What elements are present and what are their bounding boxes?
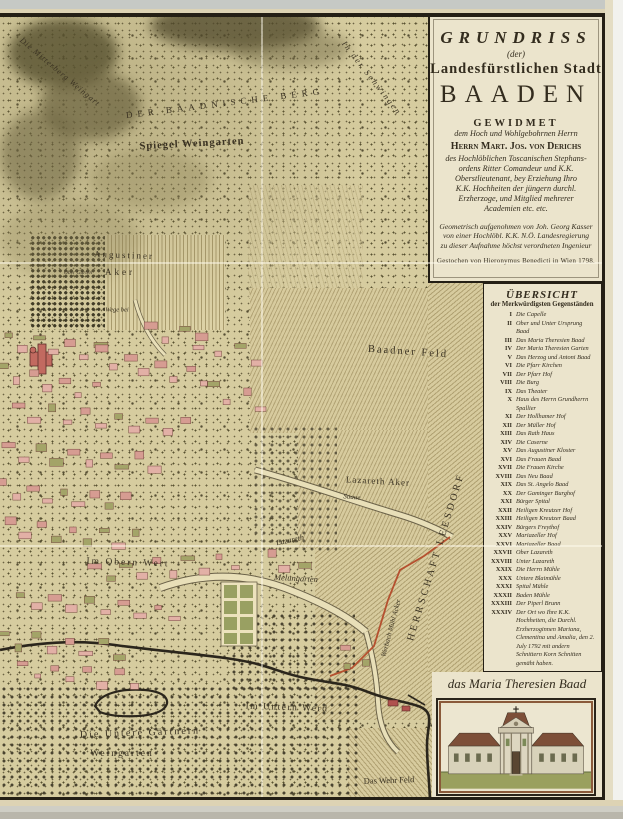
- legend-item-numeral: XX: [487, 490, 516, 499]
- legend-item-label: Die Burg: [516, 379, 597, 388]
- legend-title: ÜBERSICHT: [487, 289, 597, 301]
- legend-item-numeral: VI: [487, 362, 516, 371]
- maria-theresien-baad-illustration: [441, 703, 591, 791]
- map-label-lazareth-aker: Lazareth Aker: [346, 474, 411, 487]
- surveyor-line: Geometrisch aufgenohmen von Joh. Georg K…: [430, 222, 602, 231]
- title-grundriss: GRUNDRISS: [430, 28, 602, 48]
- legend-item-numeral: XXVII: [487, 549, 516, 558]
- margin-bottom: [0, 800, 623, 819]
- legend-item-label: Bürgers Freythof: [516, 524, 597, 533]
- legend-item: XIX Das St. Angelo Baad: [487, 481, 597, 490]
- legend-item: XXX Untere Blaimühle: [487, 575, 597, 584]
- legend-item-label: Der Maria Theresien Garten: [516, 345, 597, 354]
- map-label-augustiner: Augustiner: [94, 249, 154, 261]
- legend-item: X Haus des Herrn Grundherrn Spallier: [487, 396, 597, 413]
- legend-item-label: Das St. Angelo Baad: [516, 481, 597, 490]
- legend-item: XV Das Augustiner Kloster: [487, 447, 597, 456]
- dedication-line: Academien etc. etc.: [430, 204, 602, 214]
- legend-item-label: Das Augustiner Kloster: [516, 447, 597, 456]
- map-label-baadner-feld: Baadner Feld: [368, 344, 449, 361]
- map-label-ober-garten: Ober Garten: [64, 270, 92, 276]
- map-label-aker: Aker: [105, 267, 135, 277]
- map-label-werbach-muehl-acker: Werbach Mühl Acker: [379, 598, 402, 657]
- legend-item-label: Das Frauen Baad: [516, 456, 597, 465]
- legend-item-label: Heiligen Kreutzer Baad: [516, 515, 597, 524]
- legend-item: XXIX Die Herrn Mühle: [487, 566, 597, 575]
- legend-item-label: Mariazeller Baad: [516, 541, 597, 550]
- legend-item: XIV Die Caserne: [487, 439, 597, 448]
- dedication-line: des Hochlöblichen Toscanischen Stephans-: [430, 154, 602, 164]
- legend-item-numeral: XXII: [487, 507, 516, 516]
- legend-item: XXVII Ober Lazareth: [487, 549, 597, 558]
- title-baaden: BAADEN: [430, 81, 602, 109]
- legend-item-numeral: XVIII: [487, 473, 516, 482]
- legend-item-numeral: XXXIII: [487, 600, 516, 609]
- dedication-to: dem Hoch und Wohlgebohrnen Herrn: [430, 129, 602, 139]
- margin-right: [605, 0, 623, 819]
- legend-item-numeral: X: [487, 396, 516, 413]
- legend-item-numeral: XIX: [487, 481, 516, 490]
- legend-item: XXXII Baden Mühle: [487, 592, 597, 601]
- title-der: (der): [430, 49, 602, 59]
- legend-item-label: Der Hollhamer Hof: [516, 413, 597, 422]
- legend-item-label: Unter Lazareth: [516, 558, 597, 567]
- legend-item-numeral: XII: [487, 422, 516, 431]
- vignette-frame: [436, 698, 596, 796]
- legend-item-label: Die Frauen Kirche: [516, 464, 597, 473]
- legend-item: II Ober und Unter Ursprung Baad: [487, 320, 597, 337]
- legend-item: XXII Heiligen Kreutzer Hof: [487, 507, 597, 516]
- legend-item-numeral: VII: [487, 371, 516, 380]
- legend-item: V Das Herzog und Antoni Baad: [487, 354, 597, 363]
- engraver-note: Gestochen von Hieronymus Benedicti in Wi…: [430, 258, 602, 265]
- map-label-wege-bei: Wege bei: [105, 307, 128, 314]
- legend-item: VI Die Pfarr Kirchen: [487, 362, 597, 371]
- legend-item-numeral: XVI: [487, 456, 516, 465]
- map-label-im-untern-werd: Im Untern Werd: [245, 702, 328, 715]
- legend-item-label: Die Caserne: [516, 439, 597, 448]
- legend-item: XVIII Das Neu Baad: [487, 473, 597, 482]
- legend-item-numeral: XXIV: [487, 524, 516, 533]
- map-label-herrschaft-leesdorf: HERRSCHAFT LEESDORF: [405, 472, 467, 642]
- legend-item-label: Ober Lazareth: [516, 549, 597, 558]
- legend-item-label: Die Pfarr Kirchen: [516, 362, 597, 371]
- map-label-im-obern-wert: Im Obern Wert: [86, 557, 169, 570]
- legend-item-label: Das Herzog und Antoni Baad: [516, 354, 597, 363]
- legend-item-label: Das Theater: [516, 388, 597, 397]
- legend-item: XVI Das Frauen Baad: [487, 456, 597, 465]
- legend-item-numeral: XIV: [487, 439, 516, 448]
- legend-item-numeral: XXIII: [487, 515, 516, 524]
- legend-item-numeral: XXX: [487, 575, 516, 584]
- dedication-line: Oberstlieutenant, bey Erziehung Ihro: [430, 174, 602, 184]
- legend-item-numeral: IV: [487, 345, 516, 354]
- legend-item: XXXIII Der Piperl Brunn: [487, 600, 597, 609]
- legend-item-label: Heiligen Kreutzer Hof: [516, 507, 597, 516]
- vignette-panel: das Maria Theresien Baad: [432, 672, 602, 800]
- margin-top-gray: [0, 0, 623, 9]
- legend-item: VIII Die Burg: [487, 379, 597, 388]
- legend-item: XXXI Spital Mühle: [487, 583, 597, 592]
- legend-subtitle: der Merkwürdigsten Gegenständen: [487, 301, 597, 308]
- surveyor-line: von einer Hochlöbl. K.K. N.Ö. Landesregi…: [430, 231, 602, 240]
- legend-item-label: Der Piperl Brunn: [516, 600, 597, 609]
- legend-item-numeral: V: [487, 354, 516, 363]
- legend-panel: ÜBERSICHT der Merkwürdigsten Gegenstände…: [483, 283, 602, 672]
- legend-item: XXIII Heiligen Kreutzer Baad: [487, 515, 597, 524]
- legend-item-numeral: XVII: [487, 464, 516, 473]
- legend-item-label: Spital Mühle: [516, 583, 597, 592]
- legend-item: XXV Mariazeller Hof: [487, 532, 597, 541]
- legend-item: III Das Maria Theresien Baad: [487, 337, 597, 346]
- legend-item-numeral: VIII: [487, 379, 516, 388]
- legend-item-label: Ober und Unter Ursprung Baad: [516, 320, 597, 337]
- legend-item-label: Baden Mühle: [516, 592, 597, 601]
- legend-item-numeral: XIII: [487, 430, 516, 439]
- legend-item-numeral: IX: [487, 388, 516, 397]
- map-label-weingarten: Weingarten: [90, 749, 154, 759]
- legend-item-numeral: XV: [487, 447, 516, 456]
- neatline-top: [0, 13, 607, 17]
- legend-item-numeral: XXVI: [487, 541, 516, 550]
- margin-top-beige: [0, 9, 623, 13]
- dedication-line: ordens Ritter Comandeur und K.K.: [430, 164, 602, 174]
- legend-item-numeral: XXVIII: [487, 558, 516, 567]
- legend-item-numeral: XXI: [487, 498, 516, 507]
- surveyor-note: Geometrisch aufgenohmen von Joh. Georg K…: [430, 222, 602, 250]
- vignette-caption: das Maria Theresien Baad: [432, 672, 602, 692]
- legend-item-label: Der Pfarr Hof: [516, 371, 597, 380]
- legend-item-label: Das Maria Theresien Baad: [516, 337, 597, 346]
- legend-item-label: Bürger Spital: [516, 498, 597, 507]
- legend-item-label: Mariazeller Hof: [516, 532, 597, 541]
- dedication-heading: GEWIDMET: [430, 118, 602, 129]
- legend-item: IX Das Theater: [487, 388, 597, 397]
- legend-item-numeral: XXV: [487, 532, 516, 541]
- legend-item: XXIV Bürgers Freythof: [487, 524, 597, 533]
- title-cartouche: GRUNDRISS (der) Landesfürstlichen Stadt …: [428, 16, 602, 283]
- legend-item-label: Die Herrn Mühle: [516, 566, 597, 575]
- legend-item: I Die Capelle: [487, 311, 597, 320]
- legend-item: XX Der Gaminger Burghof: [487, 490, 597, 499]
- legend-item-label: Der Müller Hof: [516, 422, 597, 431]
- legend-item: IV Der Maria Theresien Garten: [487, 345, 597, 354]
- map-label-saaue: Saaue: [343, 492, 361, 501]
- legend-item-numeral: II: [487, 320, 516, 337]
- map-label-in-der-schwingen: In der Schwingen: [340, 39, 404, 117]
- legend-item: XIII Das Rath Haus: [487, 430, 597, 439]
- legend-item-label: Untere Blaimühle: [516, 575, 597, 584]
- legend-item-label: Das Neu Baad: [516, 473, 597, 482]
- legend-item: XXXIV Der Ort wo Ihre K.K. Hochheiten, d…: [487, 609, 597, 669]
- map-label-untere-gaertnern: Die Untere Gärtnern: [80, 725, 200, 740]
- legend-item: XXVIII Unter Lazareth: [487, 558, 597, 567]
- dedication-line: Erzherzoge, und Mitglied mehrerer: [430, 194, 602, 204]
- legend-item: XXI Bürger Spital: [487, 498, 597, 507]
- map-label-badnische-berg: DER BAADNISCHE BERG: [125, 86, 324, 120]
- legend-item-numeral: XXXIV: [487, 609, 516, 669]
- dedication-body: des Hochlöblichen Toscanischen Stephans-…: [430, 154, 602, 214]
- map-label-wehr-feld: Das Wehr Feld: [364, 774, 415, 786]
- legend-item-numeral: XXXII: [487, 592, 516, 601]
- dedication-line: K.K. Hochheiten der jüngern durchl.: [430, 184, 602, 194]
- legend-item-numeral: XXXI: [487, 583, 516, 592]
- map-label-mitterberg: Die Mitterberg Weingart: [18, 36, 102, 108]
- legend-item-label: Der Gaminger Burghof: [516, 490, 597, 499]
- surveyor-line: zu dieser Aufnahme höchst verordneten In…: [430, 241, 602, 250]
- legend-item-numeral: I: [487, 311, 516, 320]
- legend-item: XII Der Müller Hof: [487, 422, 597, 431]
- legend-items: I Die Capelle II Ober und Unter Ursprung…: [487, 311, 597, 668]
- legend-item-numeral: XXIX: [487, 566, 516, 575]
- map-label-melungarten: Melungarten: [274, 572, 318, 584]
- legend-item-numeral: XI: [487, 413, 516, 422]
- legend-item-label: Der Ort wo Ihre K.K. Hochheiten, die Dur…: [516, 609, 597, 669]
- scanned-map-sheet: Die Mitterberg Weingart DER BAADNISCHE B…: [0, 0, 623, 819]
- legend-item: XVII Die Frauen Kirche: [487, 464, 597, 473]
- map-label-lazareth: Lazareth: [275, 533, 304, 548]
- dedicatee-name: Herrn Mart. Jos. von Derichs: [430, 141, 602, 152]
- title-stadt: Landesfürstlichen Stadt: [430, 61, 602, 78]
- legend-item-label: Das Rath Haus: [516, 430, 597, 439]
- legend-item: VII Der Pfarr Hof: [487, 371, 597, 380]
- legend-item: XI Der Hollhamer Hof: [487, 413, 597, 422]
- legend-item-label: Haus des Herrn Grundherrn Spallier: [516, 396, 597, 413]
- legend-item-numeral: III: [487, 337, 516, 346]
- legend-item-label: Die Capelle: [516, 311, 597, 320]
- legend-item: XXVI Mariazeller Baad: [487, 541, 597, 550]
- map-label-spiegel-weingarten: Spiegel Weingarten: [139, 136, 244, 152]
